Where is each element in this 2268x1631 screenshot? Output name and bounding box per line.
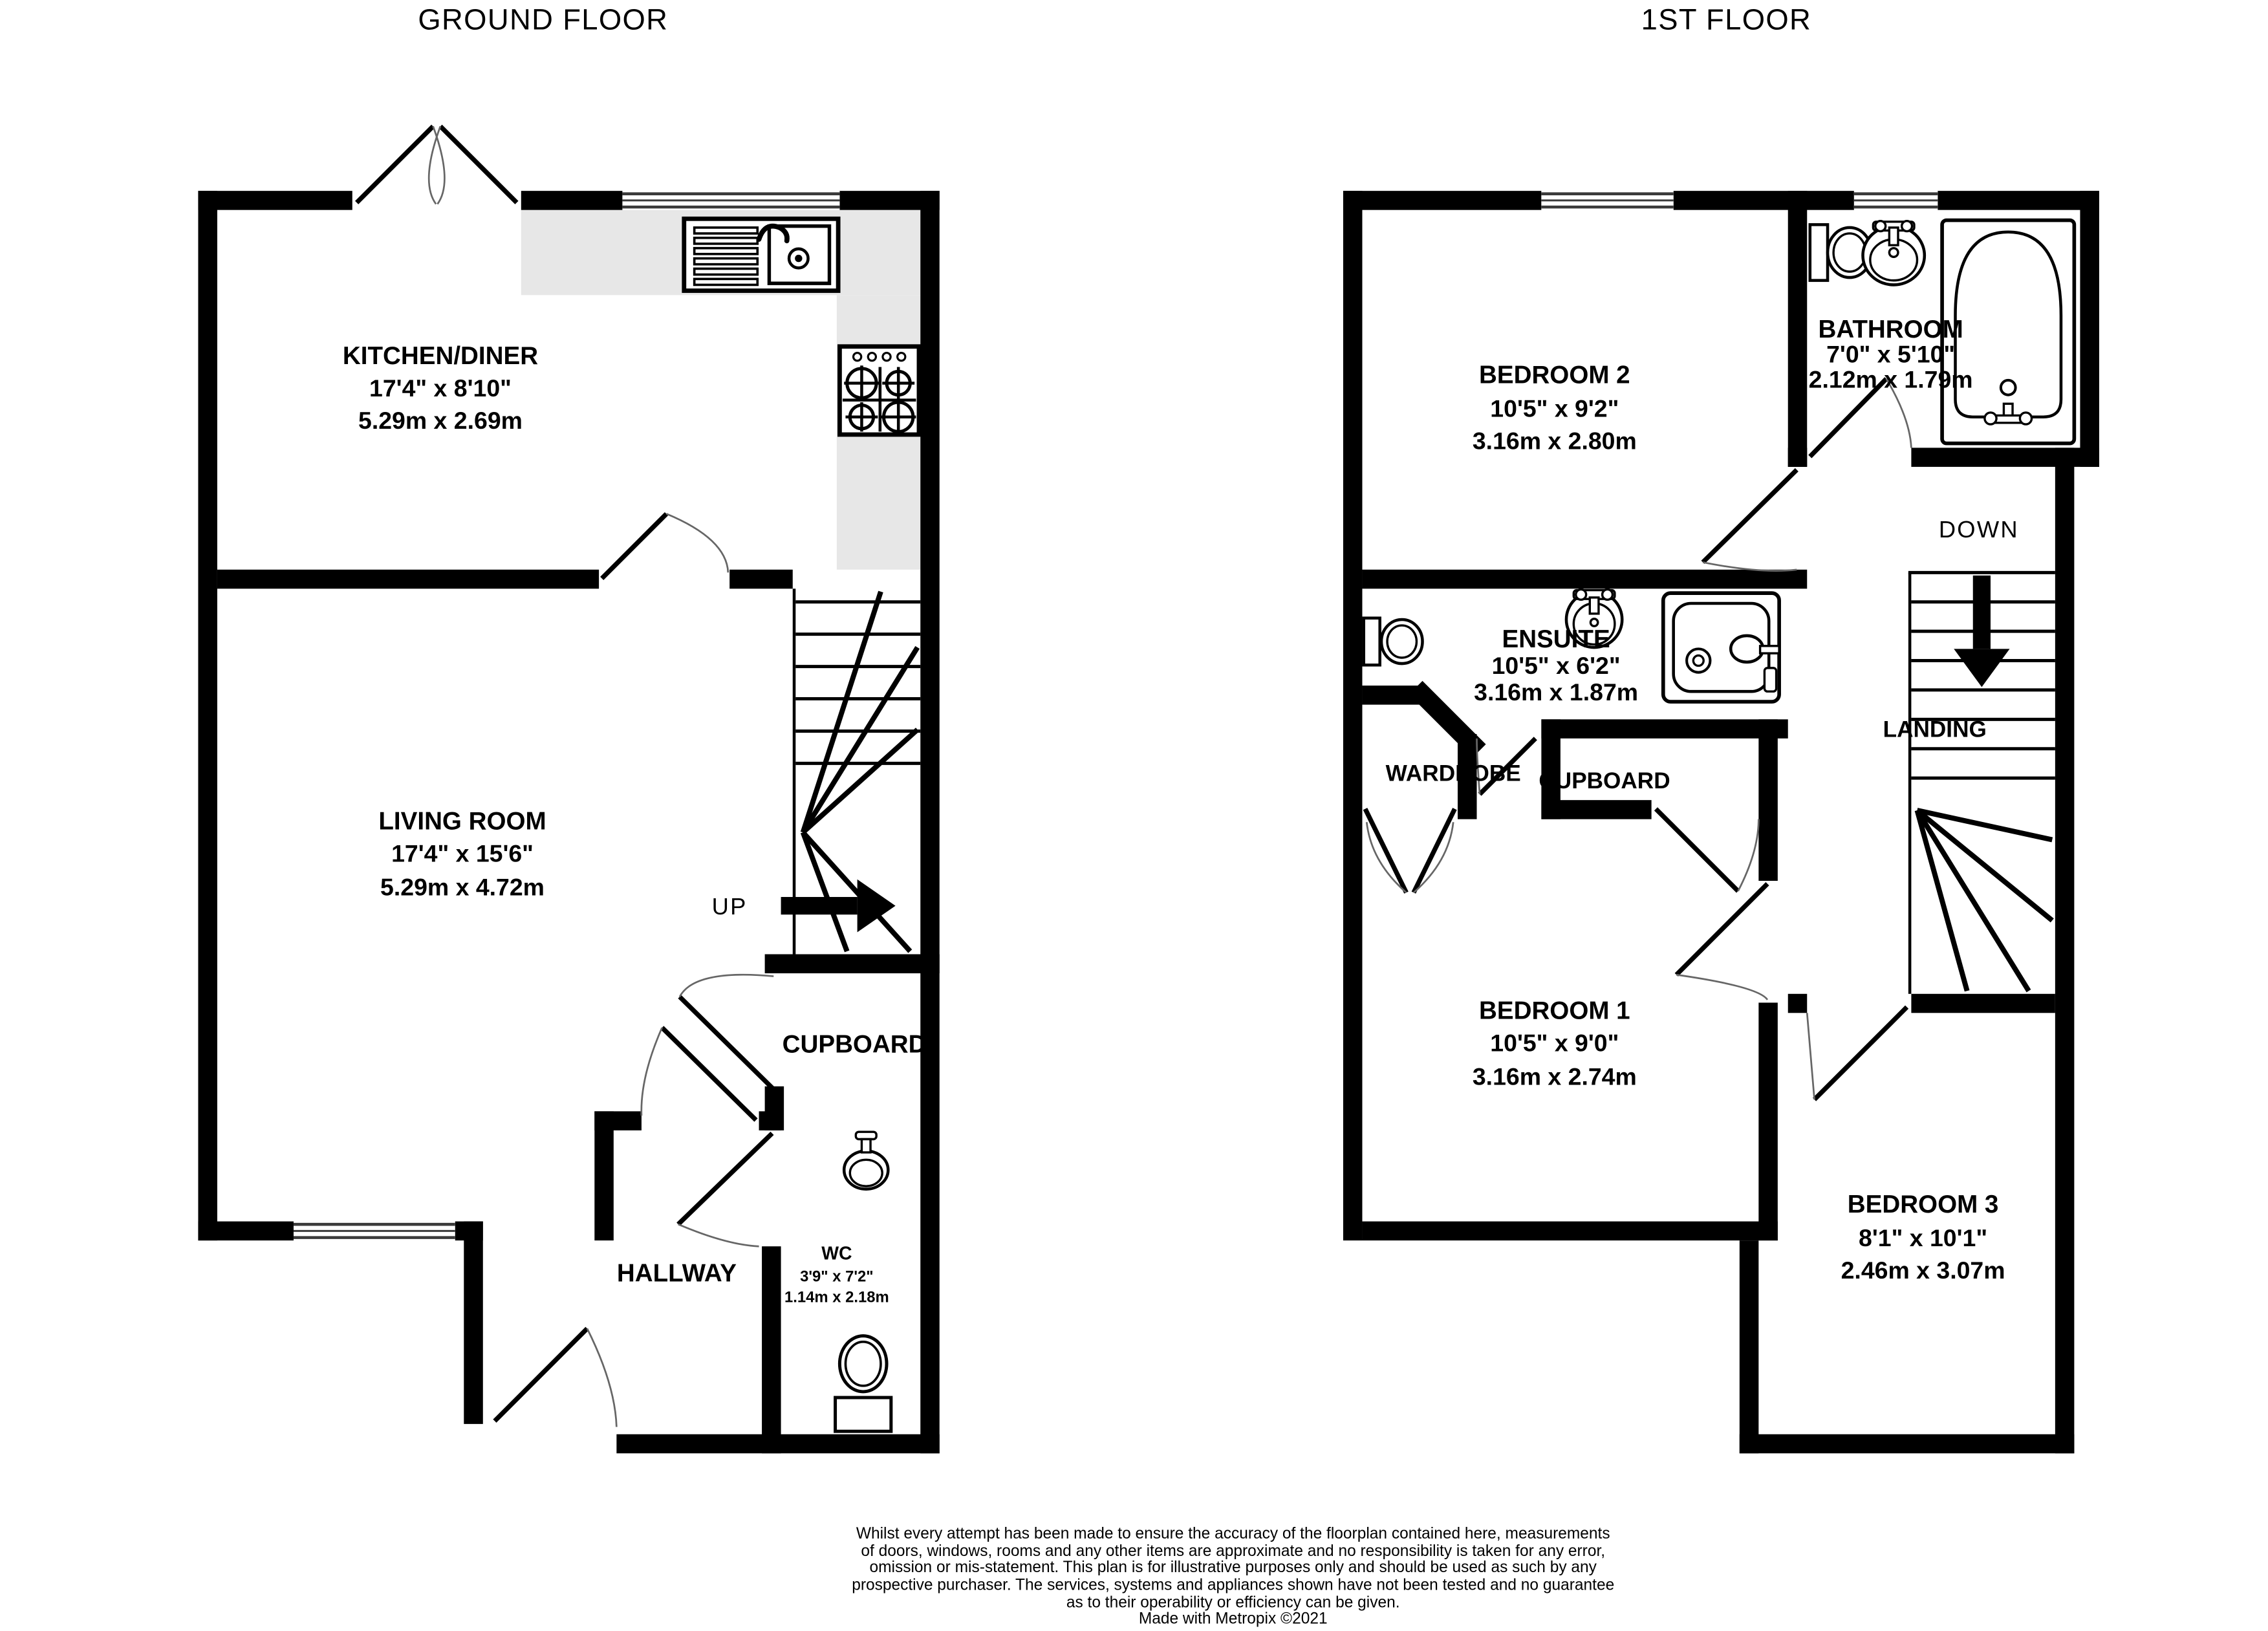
bedroom-1-label-group: BEDROOM 1 10'5" x 9'0" 3.16m x 2.74m	[1473, 997, 1637, 1090]
bedroom-2-metric: 3.16m x 2.80m	[1473, 427, 1637, 455]
first-floor-title: 1ST FLOOR	[1641, 3, 1812, 36]
up-arrow-icon	[781, 897, 858, 914]
kitchen-double-door	[357, 126, 517, 204]
bathroom-label: BATHROOM	[1818, 316, 1963, 343]
bathroom-metric: 2.12m x 1.79m	[1809, 365, 1973, 393]
front-door	[495, 1328, 616, 1427]
bedroom-3-metric: 2.46m x 3.07m	[1841, 1257, 2005, 1284]
wc-door	[678, 1133, 772, 1246]
kitchen-window	[622, 191, 839, 210]
shower-icon	[1663, 593, 1779, 702]
disclaimer-line: as to their operability or efficiency ca…	[1066, 1594, 1400, 1612]
ensuite-toilet-icon	[1364, 618, 1423, 665]
bedroom-1-door	[1676, 884, 1767, 1000]
bedroom-2-label: BEDROOM 2	[1479, 362, 1630, 389]
first-floor-plan: DOWN BEDROOM 2 10'5" x 9'2" 3.16m x 2.80…	[1343, 191, 2099, 1453]
living-room-label: LIVING ROOM	[378, 808, 546, 836]
ensuite-label: ENSUITE	[1502, 625, 1610, 653]
bedroom-1-label: BEDROOM 1	[1479, 997, 1630, 1024]
wc-metric: 1.14m x 2.18m	[784, 1288, 889, 1306]
up-label: UP	[712, 893, 748, 920]
living-room-imperial: 17'4" x 15'6"	[391, 840, 534, 867]
bathroom-label-group: BATHROOM 7'0" x 5'10" 2.12m x 1.79m	[1809, 316, 1973, 393]
wc-label-group: WC 3'9" x 7'2" 1.14m x 2.18m	[784, 1244, 889, 1306]
kitchen-diner-imperial: 17'4" x 8'10"	[369, 374, 512, 402]
bedroom-2-imperial: 10'5" x 9'2"	[1490, 395, 1619, 422]
wc-sink-icon	[844, 1132, 888, 1189]
wc-imperial: 3'9" x 7'2"	[800, 1268, 873, 1286]
bedroom-3-door	[1807, 1007, 1906, 1099]
staircase-up	[781, 589, 921, 954]
wc-label: WC	[821, 1244, 852, 1264]
wc-toilet-icon	[836, 1336, 891, 1432]
kitchen-sink-icon	[684, 219, 838, 290]
wardrobe-doors	[1365, 809, 1454, 892]
floorplan-svg: GROUND FLOOR 1ST FLOOR	[0, 0, 2268, 1631]
bedroom-2-window	[1541, 191, 1673, 210]
bathroom-sink-icon	[1863, 221, 1925, 285]
disclaimer-line: of doors, windows, rooms and any other i…	[861, 1542, 1605, 1560]
kitchen-diner-label: KITCHEN/DINER	[343, 342, 538, 370]
landing-label: LANDING	[1883, 717, 1987, 742]
disclaimer: Whilst every attempt has been made to en…	[852, 1525, 1614, 1628]
down-label: DOWN	[1939, 516, 2019, 543]
kitchen-diner-metric: 5.29m x 2.69m	[358, 407, 523, 434]
credit-line: Made with Metropix ©2021	[1139, 1610, 1328, 1628]
bedroom-3-label-group: BEDROOM 3 8'1" x 10'1" 2.46m x 3.07m	[1841, 1191, 2005, 1284]
disclaimer-line: omission or mis-statement. This plan is …	[870, 1559, 1597, 1576]
living-room-metric: 5.29m x 4.72m	[380, 874, 545, 901]
hallway-living-door	[642, 1028, 756, 1120]
kitchen-hob-icon	[839, 347, 919, 435]
bedroom-2-label-group: BEDROOM 2 10'5" x 9'2" 3.16m x 2.80m	[1473, 362, 1637, 455]
ensuite-imperial: 10'5" x 6'2"	[1492, 652, 1621, 679]
wardrobe-label: WARDROBE	[1386, 761, 1521, 786]
bathroom-imperial: 7'0" x 5'10"	[1826, 341, 1955, 368]
bedroom-3-label: BEDROOM 3	[1848, 1191, 1999, 1218]
ensuite-metric: 3.16m x 1.87m	[1474, 678, 1638, 706]
cupboard-first-label: CUPBOARD	[1539, 768, 1670, 794]
cupboard-first-door	[1656, 809, 1758, 891]
bathroom-window	[1854, 191, 1938, 210]
bedroom-1-imperial: 10'5" x 9'0"	[1490, 1029, 1619, 1056]
bedroom-1-metric: 3.16m x 2.74m	[1473, 1063, 1637, 1090]
down-arrow-icon	[1973, 576, 1991, 649]
cupboard-ground-label: CUPBOARD	[783, 1031, 927, 1059]
kitchen-door	[602, 514, 728, 579]
disclaimer-line: Whilst every attempt has been made to en…	[856, 1525, 1610, 1542]
hallway-label: HALLWAY	[617, 1260, 737, 1288]
cupboard-ground-door	[680, 975, 773, 1089]
staircase-down	[1908, 572, 2055, 993]
bedroom-3-imperial: 8'1" x 10'1"	[1859, 1224, 1987, 1251]
kitchen-diner-label-group: KITCHEN/DINER 17'4" x 8'10" 5.29m x 2.69…	[343, 342, 538, 434]
living-room-label-group: LIVING ROOM 17'4" x 15'6" 5.29m x 4.72m	[378, 808, 546, 901]
ground-floor-title: GROUND FLOOR	[418, 3, 668, 36]
disclaimer-line: prospective purchaser. The services, sys…	[852, 1576, 1614, 1593]
ground-floor-plan: UP	[198, 126, 939, 1453]
bedroom-2-door	[1703, 470, 1797, 570]
living-room-window	[294, 1222, 455, 1241]
